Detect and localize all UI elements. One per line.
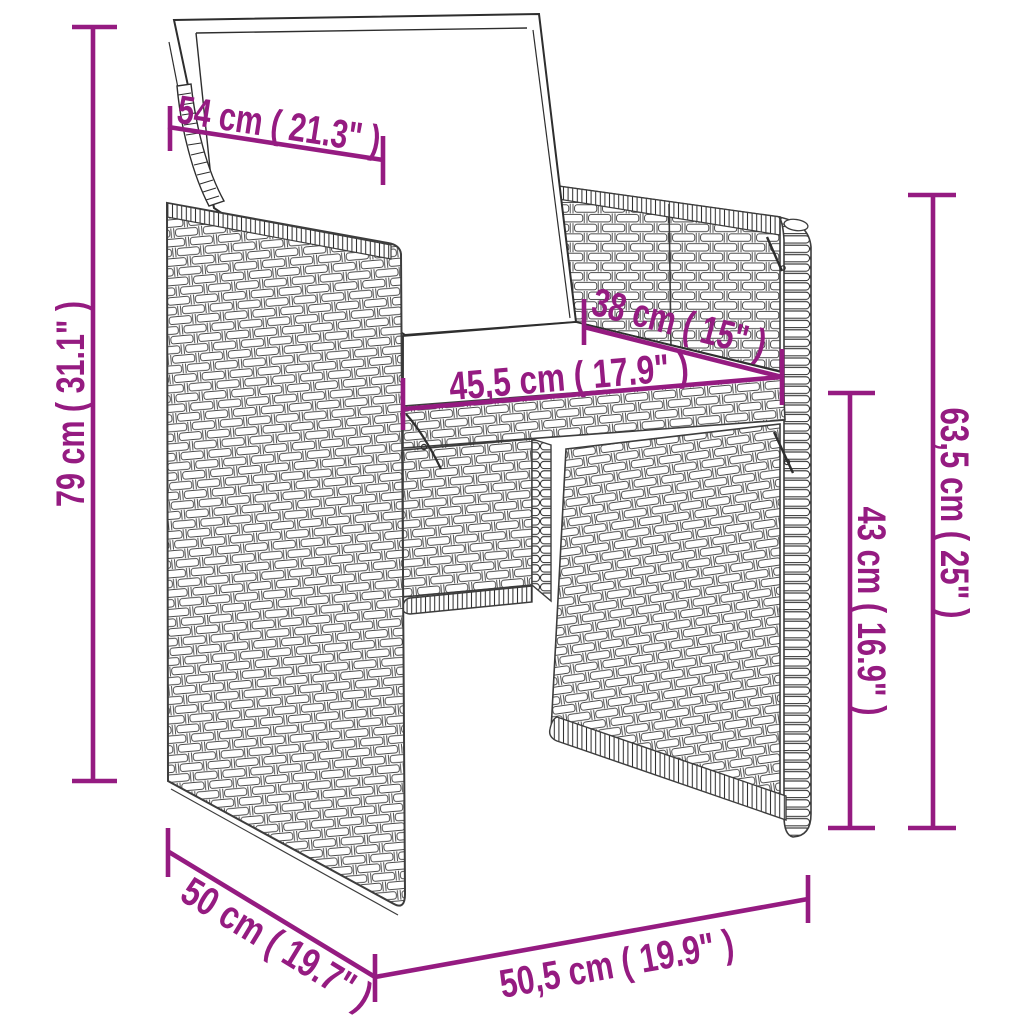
svg-text:63,5 cm ( 25" ): 63,5 cm ( 25" ) [932, 408, 976, 619]
svg-text:43 cm ( 16.9" ): 43 cm ( 16.9" ) [849, 507, 893, 716]
svg-text:79 cm ( 31.1" ): 79 cm ( 31.1" ) [49, 301, 93, 507]
